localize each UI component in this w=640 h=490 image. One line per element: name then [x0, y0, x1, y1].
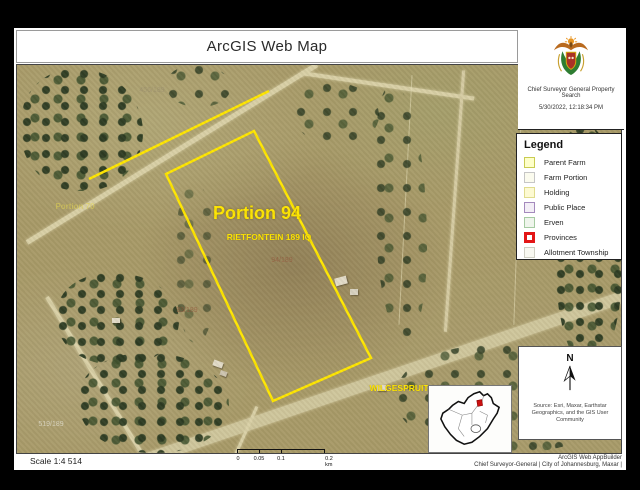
legend-item-label: Parent Farm — [544, 158, 586, 167]
parent-farm-swatch-icon — [524, 157, 535, 168]
tree-cluster — [79, 353, 229, 453]
legend-item-label: Holding — [544, 188, 569, 197]
locator-inset-map — [428, 385, 512, 453]
allotment-township-swatch-icon — [524, 247, 535, 258]
legend-item: Farm Portion — [524, 170, 621, 185]
field-boundary — [398, 75, 412, 325]
legend-title: Legend — [524, 139, 621, 151]
scale-tick-label: 0.1 — [277, 456, 285, 462]
credits-block: ArcGIS Web AppBuilder Chief Surveyor-Gen… — [362, 455, 622, 469]
parcel-label-portion-94: Portion 94 — [157, 203, 357, 224]
legend-item: Allotment Township — [524, 245, 621, 260]
north-source-panel: N Source: Esri, Maxar, Earthstar Geograp… — [518, 346, 622, 440]
export-timestamp: 5/30/2022, 12:18:34 PM — [518, 105, 624, 111]
credit-app-name: ArcGIS Web AppBuilder — [362, 455, 622, 462]
tree-cluster — [167, 65, 231, 107]
building — [350, 289, 358, 295]
south-africa-coat-of-arms-icon — [552, 35, 590, 79]
faint-portion-label: Portion 70 — [35, 202, 115, 211]
tree-cluster — [375, 87, 427, 337]
legend-item-label: Erven — [544, 218, 564, 227]
legend-item-label: Allotment Township — [544, 248, 608, 257]
road — [230, 406, 258, 454]
scale-tick-label: 0.05 — [254, 456, 265, 462]
faint-parcel-code: 519/189 — [21, 421, 81, 428]
tree-cluster — [295, 83, 379, 145]
farm-portion-swatch-icon — [524, 172, 535, 183]
faint-parcel-code: 456/189 — [122, 87, 182, 94]
scale-tick-label: 0.2 km — [325, 456, 333, 468]
header-crest-panel: Chief Surveyor General Property Search 5… — [518, 30, 624, 130]
public-place-swatch-icon — [524, 202, 535, 213]
tree-cluster — [21, 69, 143, 191]
legend-item: Provinces — [524, 230, 621, 245]
map-sheet: ArcGIS Web Map — [14, 28, 626, 470]
building — [377, 385, 386, 391]
road — [45, 296, 149, 454]
legend-item: Holding — [524, 185, 621, 200]
legend-item: Public Place — [524, 200, 621, 215]
road — [444, 70, 465, 332]
legend-item: Erven — [524, 215, 621, 230]
legend-panel: Legend Parent Farm Farm Portion Holding … — [516, 133, 622, 260]
portion-94-parcel-outline[interactable] — [166, 131, 371, 401]
road — [26, 64, 319, 245]
tree-cluster — [57, 273, 179, 365]
gauteng-highlight — [477, 400, 483, 407]
building — [219, 370, 227, 377]
legend-item-label: Provinces — [544, 233, 577, 242]
parcel-code-label: 94/189 — [252, 257, 312, 264]
building — [334, 276, 348, 287]
faint-parcel-code: 93/189 — [157, 307, 217, 314]
scale-bar: 0 0.05 0.1 0.2 km — [237, 449, 325, 465]
building — [212, 359, 223, 368]
provinces-swatch-icon — [524, 232, 535, 243]
legend-item-label: Public Place — [544, 203, 585, 212]
basemap-source-text: Source: Esri, Maxar, Earthstar Geographi… — [525, 403, 615, 424]
tree-cluster — [175, 183, 217, 343]
erven-swatch-icon — [524, 217, 535, 228]
north-label: N — [519, 353, 621, 364]
scale-tick-label: 0 — [236, 456, 239, 462]
farm-name-label: RIETFONTEIN 189 IQ — [169, 232, 369, 242]
south-africa-inset-icon — [429, 386, 511, 452]
road — [301, 71, 475, 101]
scale-ratio-text: Scale 1:4 514 — [30, 456, 82, 466]
arcgis-export-window: ArcGIS Web Map — [0, 0, 640, 490]
holding-swatch-icon — [524, 187, 535, 198]
legend-item: Parent Farm — [524, 155, 621, 170]
credit-attribution: Chief Surveyor-General | City of Johanne… — [362, 462, 622, 469]
org-label: Chief Surveyor General Property Search — [518, 87, 624, 99]
legend-item-label: Farm Portion — [544, 173, 587, 182]
road-boundary-line — [89, 91, 269, 179]
north-arrow-icon — [558, 364, 582, 392]
building — [112, 318, 120, 323]
page-title: ArcGIS Web Map — [16, 30, 518, 63]
